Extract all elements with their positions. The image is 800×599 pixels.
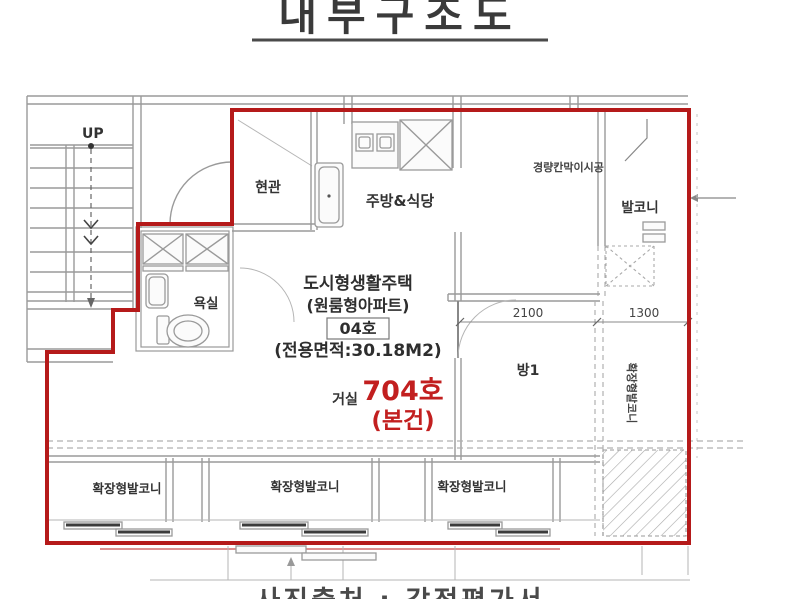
stairs-start-dot — [88, 143, 94, 149]
room-label-balcony: 발코니 — [621, 199, 658, 216]
stairs-arrowhead — [87, 298, 95, 308]
room1-door-arc — [458, 300, 516, 358]
kitchen-area: 주방&식당 — [315, 120, 452, 227]
room-label-entrance: 현관 — [255, 179, 281, 196]
unit-area: (전용면적:30.18M2) — [274, 341, 441, 361]
unit-number: 04호 — [340, 319, 377, 338]
room-label-ext-balcony-vertical: 확장형발코니 — [625, 363, 639, 424]
staircase: UP — [27, 96, 141, 362]
room-label-bathroom: 욕실 — [194, 296, 219, 312]
page-title: 내부구조도 — [278, 0, 521, 40]
right-balcony-strip: 확장형발코니 — [595, 363, 686, 536]
lower-floor-fragments — [150, 546, 690, 580]
room-label-living: 거실 — [332, 392, 358, 408]
entrance-area: 현관 — [170, 112, 317, 231]
window-symbol — [448, 522, 550, 536]
unit-info-line1: 도시형생활주택 — [303, 273, 412, 294]
room1-area: 방1 2100 1300 — [448, 232, 692, 460]
dimension-room1-width: 2100 — [513, 306, 544, 320]
window-symbol — [240, 522, 368, 536]
room-label-ext-balcony-2: 확장형발코니 — [270, 479, 339, 494]
bathroom-area: 욕실 — [136, 227, 294, 351]
living-area: 거실 704호 (본건) — [47, 376, 745, 448]
room-label-ext-balcony-3: 확장형발코니 — [437, 479, 506, 494]
entrance-door-arc — [170, 162, 232, 224]
room-label-kitchen: 주방&식당 — [366, 192, 434, 210]
bathroom-door-arc — [240, 268, 294, 322]
floor-plan-image: 내부구조도 UP — [0, 0, 800, 599]
room-label-room1: 방1 — [517, 362, 540, 379]
unit-info-line2: (원룸형아파트) — [307, 296, 410, 315]
unit-info-block: 도시형생활주택 (원룸형아파트) 04호 (전용면적:30.18M2) — [274, 273, 441, 361]
window-symbol — [64, 522, 172, 536]
subject-unit-tag: (본건) — [371, 408, 434, 434]
bottom-balconies: 확장형발코니 확장형발코니 확장형발코니 — [47, 456, 600, 536]
partition-leader-line — [625, 119, 647, 161]
dashed-window-box — [606, 246, 654, 286]
floor-plan-svg: 내부구조도 UP — [0, 0, 800, 599]
room-label-ext-balcony-1: 확장형발코니 — [92, 481, 161, 496]
stairs-up-label: UP — [82, 126, 104, 142]
dimension-balcony-width: 1300 — [629, 306, 660, 320]
image-caption: 사진출처 : 감정평가서 — [255, 586, 544, 599]
subject-unit-number: 704호 — [362, 376, 443, 407]
dimension-arrow — [287, 557, 295, 566]
hatched-area — [603, 450, 686, 536]
partition-annotation: 경량칸막이시공 — [533, 160, 604, 174]
